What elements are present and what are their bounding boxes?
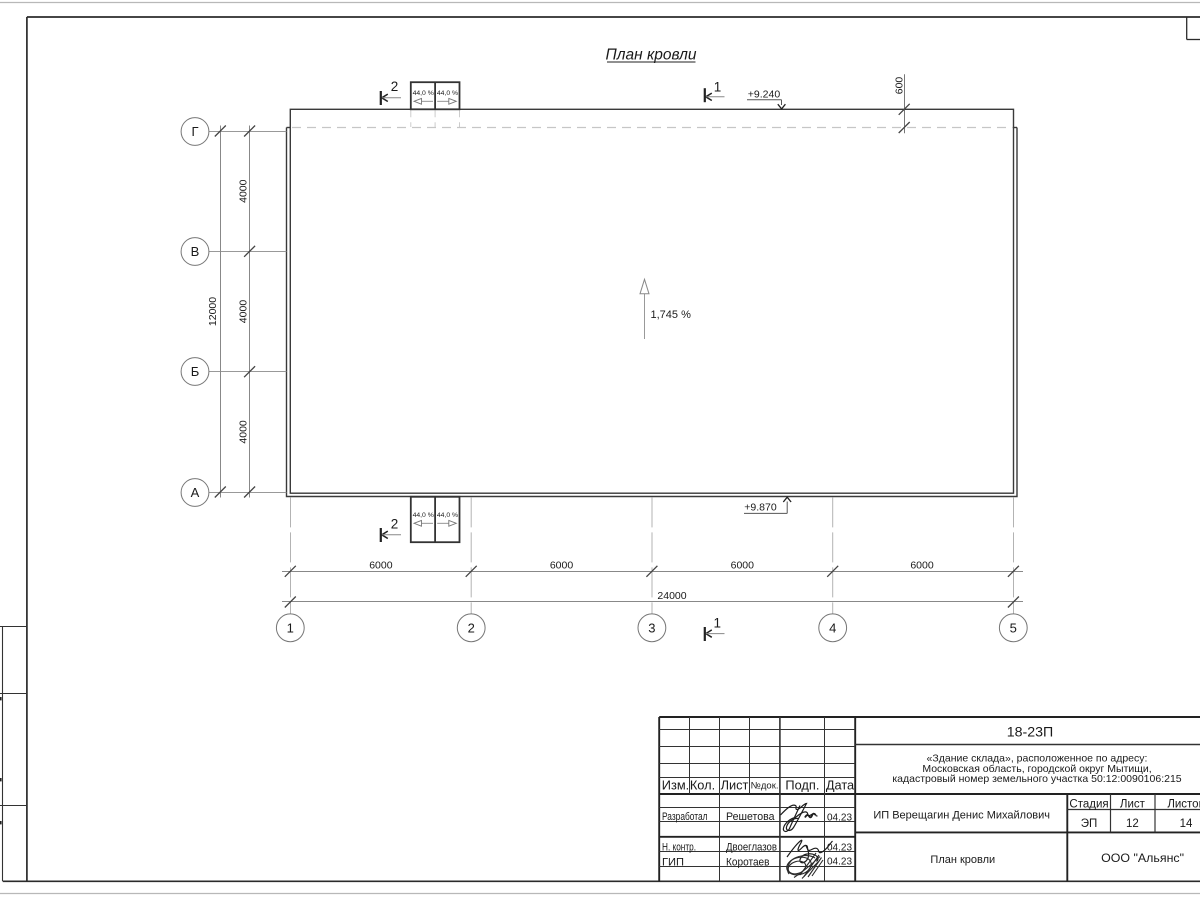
- svg-text:В: В: [191, 244, 200, 259]
- svg-text:Б: Б: [191, 364, 200, 379]
- svg-text:Лист: Лист: [1120, 798, 1146, 810]
- svg-text:План кровли: План кровли: [930, 854, 995, 866]
- svg-text:Стадия: Стадия: [1069, 798, 1108, 810]
- svg-text:Г: Г: [191, 124, 198, 139]
- svg-text:4: 4: [829, 620, 836, 635]
- svg-text:Разработал: Разработал: [662, 811, 708, 823]
- svg-text:ЭП: ЭП: [1081, 818, 1098, 830]
- svg-text:44,0 %: 44,0 %: [437, 512, 458, 519]
- svg-text:Подп.: Подп.: [785, 777, 819, 792]
- svg-text:600: 600: [894, 77, 906, 95]
- svg-text:2: 2: [391, 516, 399, 531]
- svg-text:кадастровый номер земельного у: кадастровый номер земельного участка 50:…: [892, 773, 1181, 785]
- svg-text:1: 1: [714, 616, 722, 631]
- svg-text:24000: 24000: [657, 590, 686, 602]
- svg-text:44,0 %: 44,0 %: [413, 512, 434, 519]
- svg-text:Изм.: Изм.: [662, 777, 689, 792]
- svg-text:+9.240: +9.240: [748, 88, 781, 100]
- svg-text:№док.: №док.: [751, 781, 779, 792]
- svg-text:Лист: Лист: [721, 777, 749, 792]
- svg-text:44,0 %: 44,0 %: [413, 90, 434, 97]
- svg-text:18-23П: 18-23П: [1007, 724, 1053, 740]
- svg-text:ИП Верещагин Денис Михайлович: ИП Верещагин Денис Михайлович: [873, 809, 1050, 821]
- svg-text:04.23: 04.23: [827, 842, 852, 853]
- svg-text:ГИП: ГИП: [662, 856, 684, 868]
- svg-text:1: 1: [714, 79, 722, 94]
- svg-text:Коротаев: Коротаев: [726, 856, 770, 868]
- svg-text:12000: 12000: [207, 297, 219, 326]
- svg-text:А: А: [191, 485, 200, 500]
- svg-text:Двоеглазов: Двоеглазов: [726, 842, 777, 854]
- svg-text:ООО "Альянс": ООО "Альянс": [1101, 851, 1184, 865]
- svg-text:5: 5: [1010, 620, 1017, 635]
- svg-text:Кол.: Кол.: [690, 777, 715, 792]
- svg-text:4000: 4000: [237, 179, 249, 203]
- svg-text:6000: 6000: [550, 559, 574, 571]
- svg-text:2: 2: [391, 79, 399, 94]
- svg-text:04.23: 04.23: [827, 812, 852, 823]
- svg-text:Н. контр.: Н. контр.: [662, 842, 696, 854]
- svg-text:12: 12: [1126, 818, 1139, 830]
- svg-text:14: 14: [1180, 818, 1193, 830]
- svg-text:Решетова: Решетова: [726, 811, 775, 823]
- svg-text:1,745 %: 1,745 %: [651, 309, 692, 321]
- svg-text:44,0 %: 44,0 %: [437, 90, 458, 97]
- svg-text:4000: 4000: [237, 300, 249, 324]
- svg-text:Листов: Листов: [1167, 798, 1200, 810]
- svg-text:6000: 6000: [731, 559, 755, 571]
- svg-text:3: 3: [648, 620, 655, 635]
- svg-text:6000: 6000: [369, 559, 393, 571]
- svg-text:04.23: 04.23: [827, 857, 852, 868]
- svg-text:2: 2: [468, 620, 475, 635]
- svg-text:4000: 4000: [237, 420, 249, 444]
- svg-text:+9.870: +9.870: [744, 502, 777, 514]
- svg-text:План кровли: План кровли: [606, 47, 697, 64]
- svg-text:1: 1: [287, 620, 294, 635]
- svg-text:6000: 6000: [910, 559, 934, 571]
- svg-text:Дата: Дата: [826, 777, 855, 792]
